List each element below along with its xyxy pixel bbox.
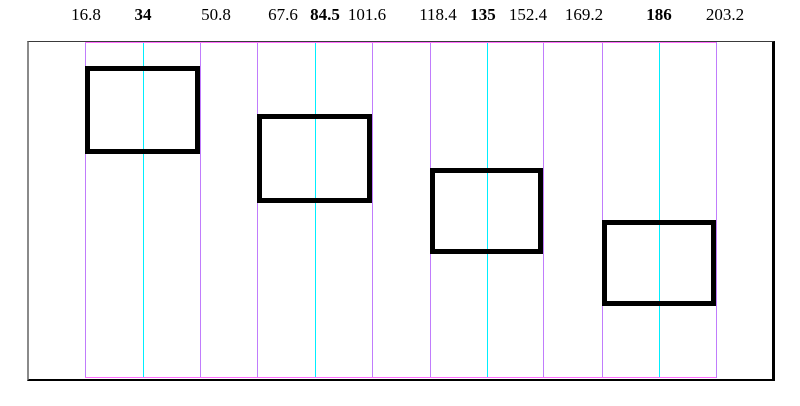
dimension-label: 50.8 [201,6,231,24]
dimension-label: 203.2 [706,6,744,24]
detail-box [85,66,200,154]
vertical-gridline [200,42,201,378]
dimension-label: 34 [135,6,152,24]
dimension-label: 84.5 [310,6,340,24]
dimension-label: 135 [470,6,496,24]
vertical-gridline [716,42,717,378]
dimension-label: 67.6 [268,6,298,24]
dimension-line [85,42,716,43]
dimension-label: 152.4 [509,6,547,24]
dimension-label: 118.4 [419,6,457,24]
vertical-gridline [543,42,544,378]
vertical-gridline [372,42,373,378]
detail-box [602,220,716,306]
dimension-label: 169.2 [565,6,603,24]
center-line [659,42,660,378]
vertical-gridline [602,42,603,378]
dimension-line [85,377,716,378]
dimension-label: 101.6 [348,6,386,24]
drawing-stage: 16.83450.867.684.5101.6118.4135152.4169.… [0,0,800,406]
dimension-label: 186 [646,6,672,24]
detail-box [257,114,372,203]
detail-box [430,168,543,254]
center-line [315,42,316,378]
dimension-label: 16.8 [71,6,101,24]
vertical-gridline [257,42,258,378]
